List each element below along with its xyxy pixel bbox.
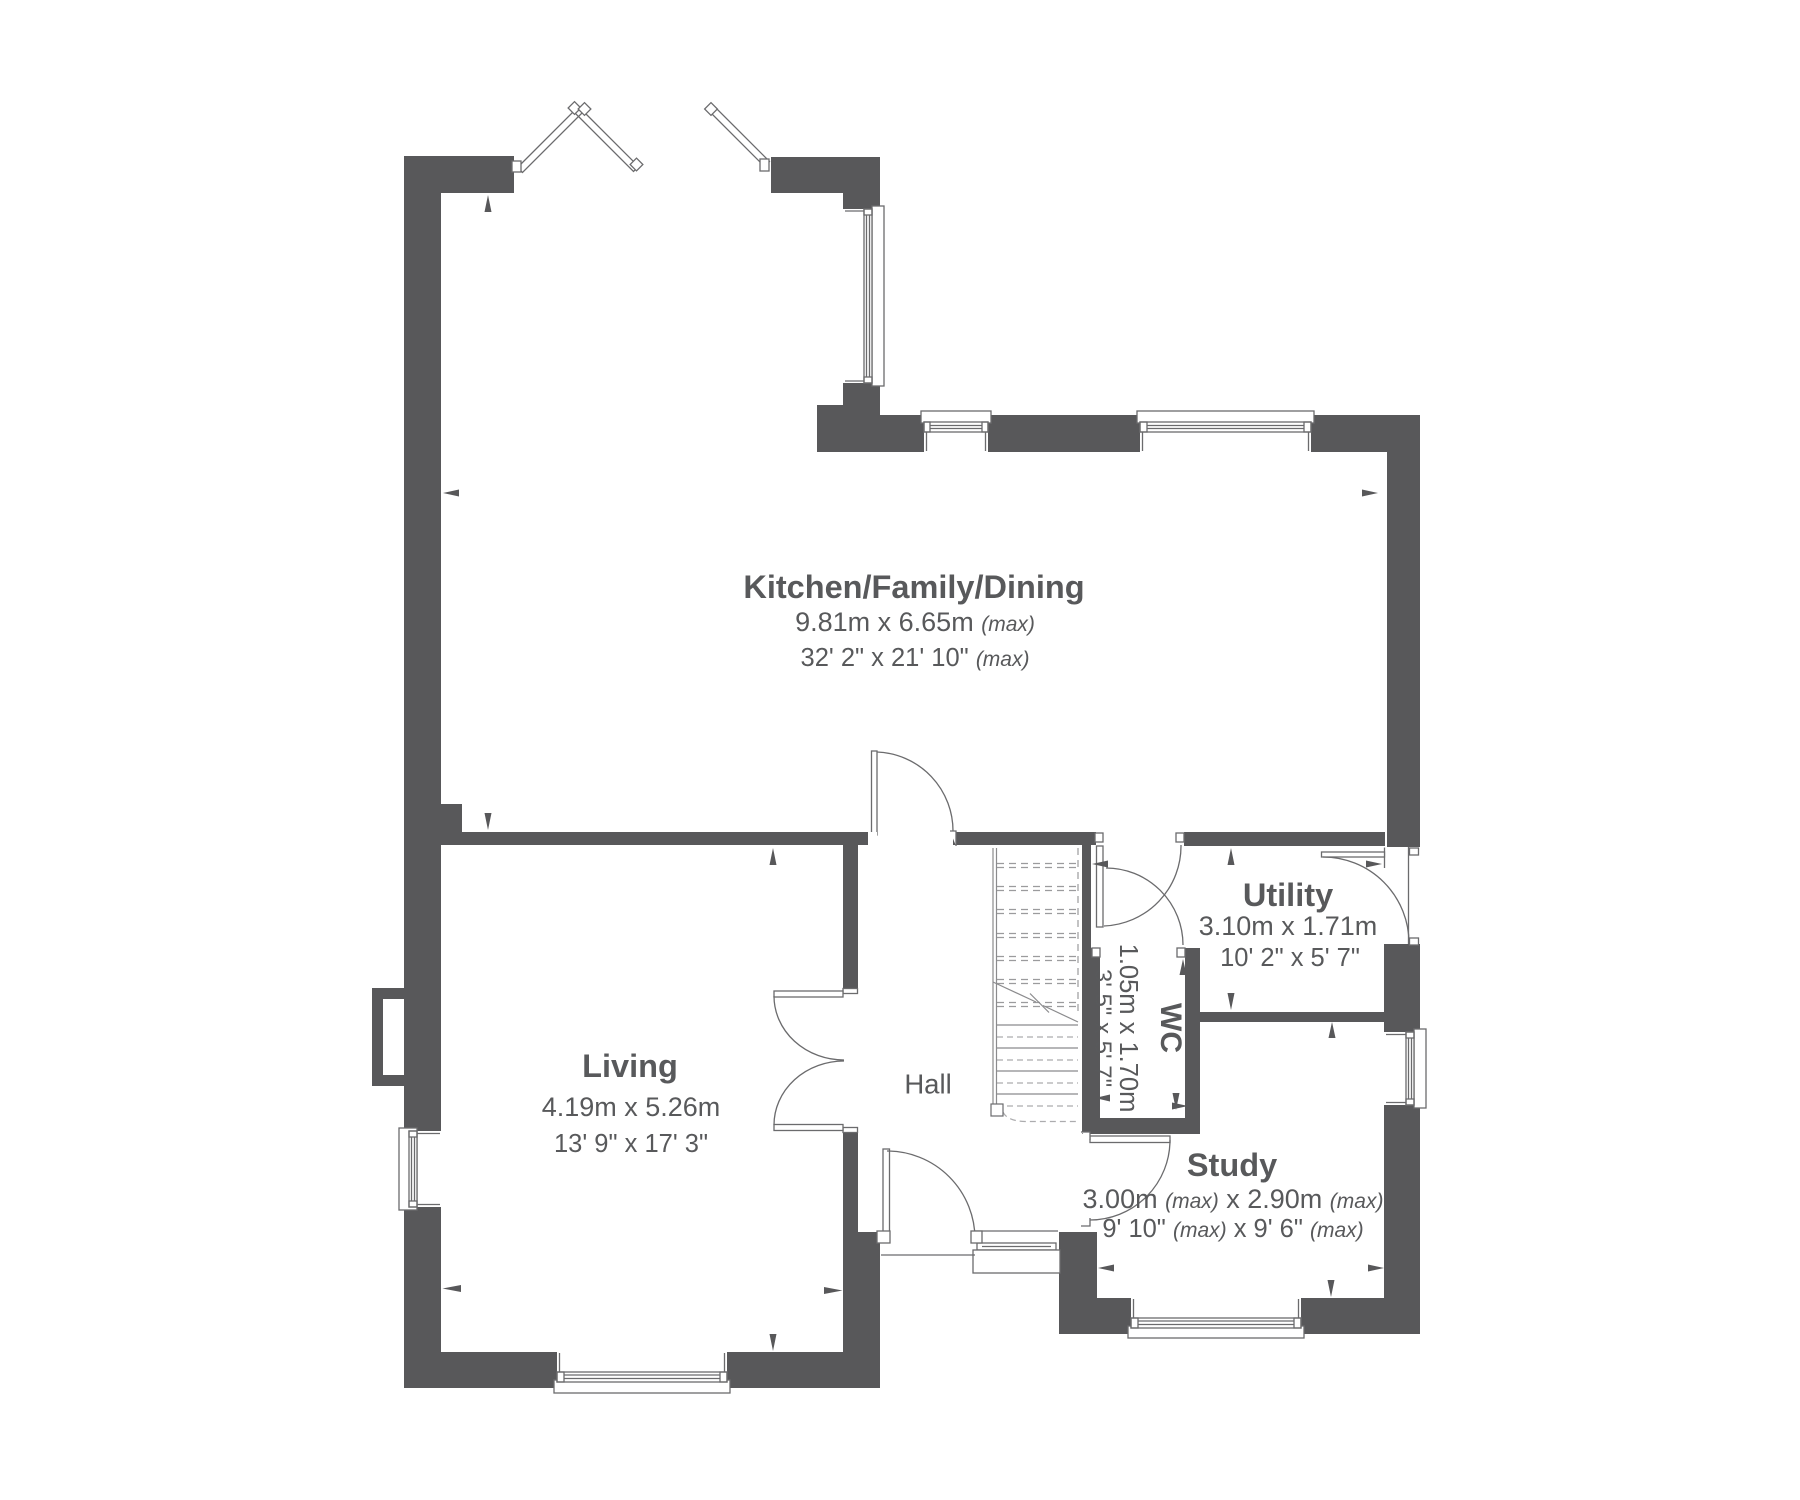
svg-text:3.00m (max) x 2.90m (max): 3.00m (max) x 2.90m (max) bbox=[1083, 1184, 1384, 1214]
svg-text:10' 2" x 5' 7": 10' 2" x 5' 7" bbox=[1220, 944, 1360, 972]
svg-text:3.10m x 1.71m: 3.10m x 1.71m bbox=[1199, 911, 1378, 941]
svg-text:Hall: Hall bbox=[904, 1069, 951, 1100]
svg-text:9' 10" (max) x 9' 6" (max): 9' 10" (max) x 9' 6" (max) bbox=[1102, 1215, 1363, 1243]
svg-text:1.05m x 1.70m: 1.05m x 1.70m bbox=[1114, 944, 1142, 1113]
svg-text:Kitchen/Family/Dining: Kitchen/Family/Dining bbox=[743, 569, 1084, 605]
svg-text:32' 2" x 21' 10" (max): 32' 2" x 21' 10" (max) bbox=[801, 644, 1030, 672]
svg-text:Study: Study bbox=[1187, 1147, 1277, 1183]
svg-text:Utility: Utility bbox=[1243, 877, 1333, 913]
svg-text:WC: WC bbox=[1154, 1003, 1187, 1053]
svg-text:13' 9" x 17' 3": 13' 9" x 17' 3" bbox=[554, 1130, 708, 1158]
svg-text:Living: Living bbox=[582, 1048, 678, 1084]
svg-text:4.19m x 5.26m: 4.19m x 5.26m bbox=[542, 1092, 721, 1122]
svg-text:9.81m x 6.65m (max): 9.81m x 6.65m (max) bbox=[795, 607, 1035, 637]
svg-text:3' 5" x 5' 7": 3' 5" x 5' 7" bbox=[1089, 969, 1116, 1087]
